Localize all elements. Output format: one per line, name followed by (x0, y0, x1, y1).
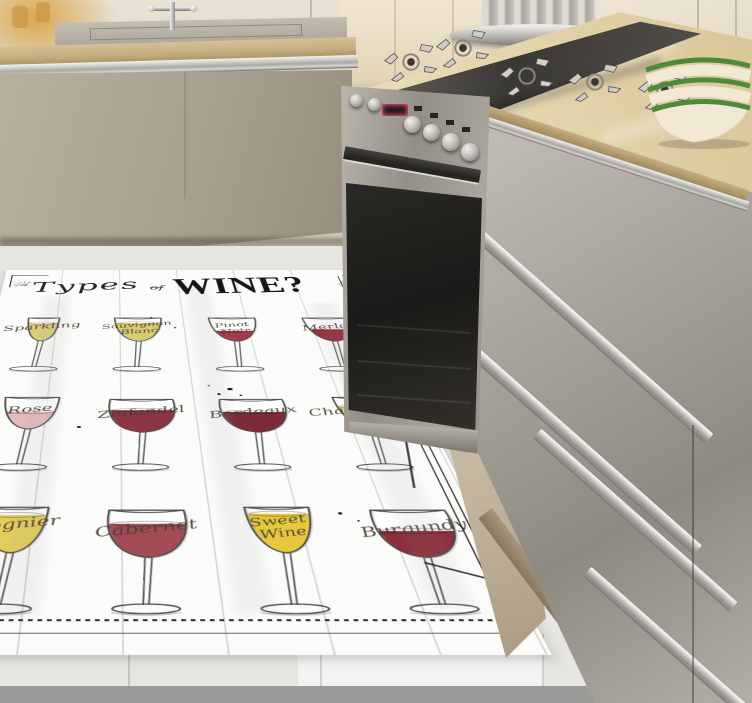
oven-door-glass (346, 178, 482, 430)
oven-display (382, 104, 408, 116)
svg-text:SauvignonBlanc: SauvignonBlanc (101, 319, 176, 336)
wine-glass-cabernet: Cabernet (74, 501, 230, 646)
oven-rack-reflection (357, 360, 471, 370)
ink-splatter (217, 393, 221, 395)
rug-title-row: Types of WINE? (0, 270, 373, 314)
oven (338, 82, 493, 454)
oven-knob (350, 94, 363, 107)
faucet-handle (190, 5, 197, 12)
amber-glass (12, 6, 28, 28)
oven-button (446, 120, 454, 125)
oven-knob (423, 124, 440, 141)
wine-glass-sauvignon-blanc: SauvignonBlanc (88, 314, 195, 386)
ink-splatter (174, 327, 177, 328)
ink-splatter (77, 426, 81, 428)
rug-bottom-line (0, 633, 523, 634)
rug-title-wine: WINE? (171, 273, 310, 298)
ink-splatter (227, 388, 233, 390)
oven-knob (368, 98, 381, 111)
wine-glass-zinfandel: Zinfandel (82, 393, 209, 492)
wine-glass-icon: SauvignonBlanc (88, 314, 195, 386)
amber-glass (36, 2, 50, 22)
faucet-handle (148, 5, 155, 12)
rug-stitch-line (0, 619, 507, 621)
ink-splatter (239, 395, 242, 396)
ink-splatter (338, 512, 343, 514)
oven-knob (404, 116, 421, 133)
drawer-handle (583, 567, 752, 703)
wine-glass-icon: Cabernet (74, 501, 230, 646)
faucet-stem (170, 2, 175, 30)
oven-knob (442, 133, 460, 151)
starburst-icon (9, 275, 34, 295)
oven-button (462, 127, 470, 132)
rug-title-of: of (149, 284, 164, 291)
wine-glass-icon: Zinfandel (82, 393, 209, 492)
rug-title-types: Types (32, 277, 141, 294)
bowl-stack-icon (642, 46, 752, 150)
cabinet-seam (184, 70, 186, 199)
oven-rack-reflection (357, 394, 471, 404)
oven-button (430, 113, 438, 118)
drawer-handle (533, 429, 738, 612)
ink-splatter (208, 385, 210, 386)
sink-outline (90, 24, 302, 41)
ink-splatter (150, 317, 152, 318)
drawer-seam (692, 425, 694, 703)
oven-rack-reflection (357, 324, 471, 334)
cabinet-front-left (0, 70, 352, 254)
oven-knob (461, 143, 479, 161)
ink-splatter (357, 520, 360, 522)
drawer-handle (473, 229, 714, 444)
oven-button (414, 106, 422, 111)
kitchen-scene: Types of WINE? (0, 0, 752, 703)
